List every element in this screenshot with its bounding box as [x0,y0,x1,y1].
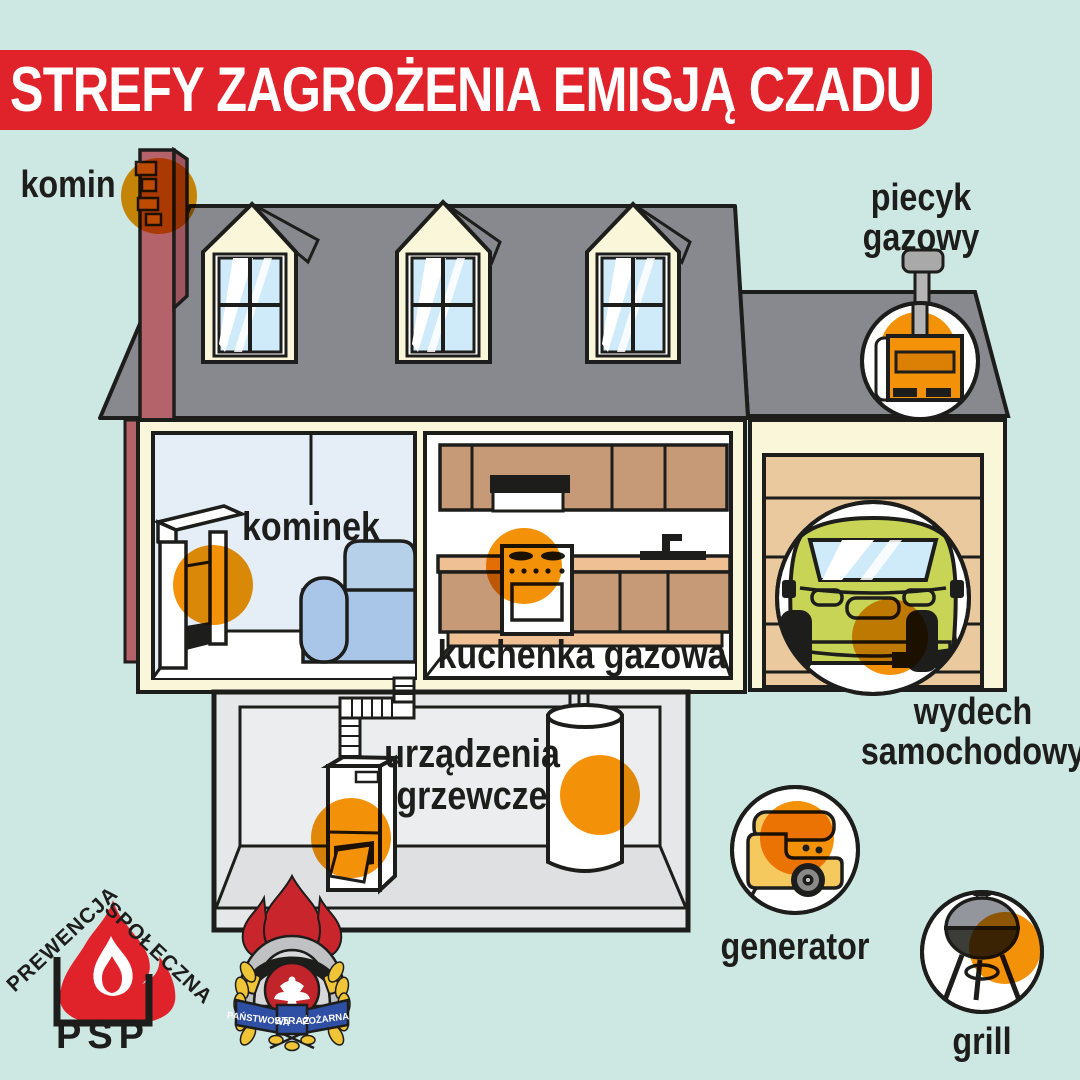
label-fireplace: kominek [242,506,380,548]
hazard-zone-fireplace [173,545,253,625]
label-generator: generator [721,927,870,967]
page-title: STREFY ZAGROŻENIA EMISJĄ CZADU [10,54,921,126]
hazard-zone-furnace [311,798,391,878]
range-hood-icon [490,475,570,493]
label-gas-heater: piecyk gazowy [863,178,980,259]
car-icon [780,505,965,690]
gas-heater-badge [858,250,982,425]
living-room [153,433,415,678]
label-chimney: komin [20,165,115,205]
infographic-canvas: PREWENCJA SPOŁECZNA PSP [0,0,1080,1080]
label-heating-devices: urządzenia grzewcze [384,733,560,818]
generator-icon [743,801,842,902]
hazard-zone-car-exhaust [852,599,928,675]
hazard-zone-chimney [121,158,197,234]
hazard-zone-gas-stove [486,528,562,604]
sink-icon [640,551,706,560]
psp-abbr-text: PSP [56,1015,150,1057]
label-gas-stove: kuchenka gazowa [437,634,726,676]
grill-badge [922,890,1042,1012]
car-exhaust-badge [777,502,969,694]
psp-logo: PREWENCJA SPOŁECZNA PSP [2,882,217,1057]
hazard-zone-water-heater [560,755,640,835]
label-car-exhaust: wydech samochodowy [861,692,1080,773]
generator-badge [732,787,858,913]
label-grill: grill [952,1022,1011,1062]
scene-illustration: PREWENCJA SPOŁECZNA PSP [0,0,1080,1080]
title-banner: STREFY ZAGROŻENIA EMISJĄ CZADU [0,50,932,130]
